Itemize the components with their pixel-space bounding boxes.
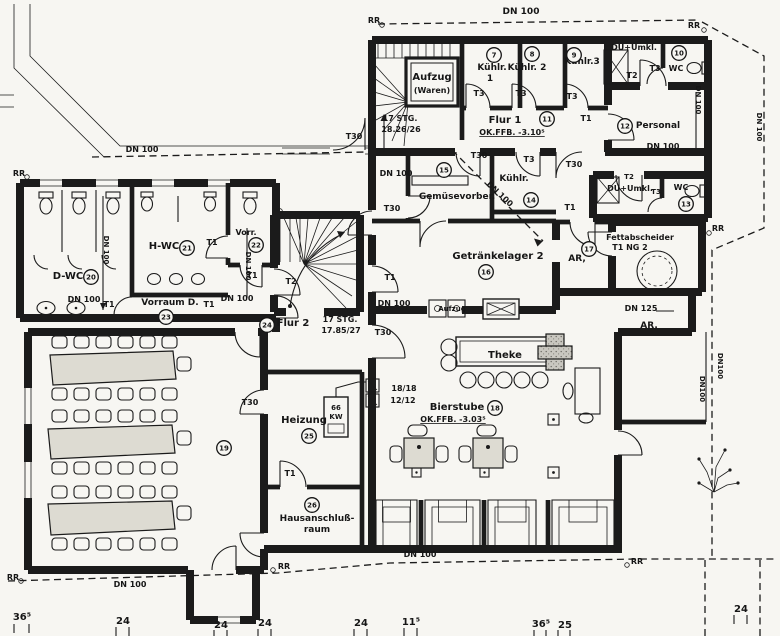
plan-label: 11⁵ bbox=[402, 617, 420, 628]
plan-label: KW bbox=[329, 413, 342, 421]
plan-label: Flur 1 bbox=[489, 115, 522, 126]
room-number: 16 bbox=[481, 269, 491, 277]
plan-label: T3 bbox=[651, 188, 661, 196]
plan-label: DU+Umkl. bbox=[607, 184, 653, 193]
plan-label: T3 bbox=[523, 155, 534, 164]
dimension-tick bbox=[354, 629, 367, 636]
desk bbox=[563, 368, 600, 423]
chair-icon bbox=[118, 486, 133, 498]
chair-icon bbox=[140, 388, 155, 400]
chair-icon bbox=[162, 388, 177, 400]
dimension-tick bbox=[258, 629, 271, 636]
plan-label: T30 bbox=[242, 398, 259, 407]
room-number-bubble: 13 bbox=[679, 197, 694, 212]
plan-label: T1 bbox=[384, 273, 395, 282]
room-number-bubble: 25 bbox=[302, 429, 317, 444]
plan-label: RR bbox=[631, 557, 643, 566]
room-number-bubble: 9 bbox=[567, 48, 582, 63]
room-number-bubble: 8 bbox=[525, 47, 540, 62]
chair-icon bbox=[52, 410, 67, 422]
dimension-tick bbox=[734, 615, 747, 624]
plan-label: 1 bbox=[487, 74, 493, 84]
urinal-icon bbox=[204, 192, 216, 211]
plan-label: T1 bbox=[564, 203, 575, 212]
room-number: 11 bbox=[542, 116, 552, 124]
chair-icon bbox=[177, 357, 191, 371]
plan-label: 36⁵ bbox=[532, 619, 550, 630]
chair-icon bbox=[140, 462, 155, 474]
room-number-bubble: 20 bbox=[84, 270, 99, 285]
plan-label: OK.FFB. -3.10⁵ bbox=[479, 128, 545, 137]
rainpipe-marker bbox=[625, 563, 630, 568]
chair-icon bbox=[118, 410, 133, 422]
room-number: 8 bbox=[530, 51, 535, 59]
room-number: 24 bbox=[262, 322, 272, 330]
room-number-bubble: 10 bbox=[672, 46, 687, 61]
room-number-bubble: 24 bbox=[260, 318, 275, 333]
room-number: 23 bbox=[161, 314, 171, 322]
chair-icon bbox=[118, 538, 133, 550]
chair-icon bbox=[140, 410, 155, 422]
plan-label: DU+Umkl. bbox=[611, 43, 657, 52]
plan-label: T1 bbox=[284, 469, 295, 478]
plan-label: DN 100 bbox=[102, 236, 110, 265]
room-number-bubble: 14 bbox=[524, 193, 539, 208]
room-number: 21 bbox=[182, 245, 192, 253]
plan-label: raum bbox=[304, 525, 330, 535]
window-bay bbox=[383, 507, 410, 547]
plan-label: RR bbox=[7, 573, 19, 582]
plan-label: 18/18 bbox=[391, 384, 417, 393]
plan-label: Fettabscheider bbox=[606, 233, 674, 242]
plan-label: Bierstube bbox=[430, 402, 485, 413]
chair-icon bbox=[74, 486, 89, 498]
room-number: 26 bbox=[307, 502, 317, 510]
window-bay bbox=[495, 507, 529, 547]
plan-label: T30 bbox=[471, 151, 488, 160]
plan-label: RR bbox=[278, 562, 290, 571]
room-number-bubble: 19 bbox=[217, 441, 232, 456]
plant-icon bbox=[697, 448, 739, 492]
plan-label: 17 STG. bbox=[323, 315, 358, 324]
plan-label: T1 NG 2 bbox=[612, 243, 647, 252]
room-number-bubble: 26 bbox=[305, 498, 320, 513]
bar-stool-icon bbox=[441, 355, 457, 371]
toilet-icon bbox=[39, 192, 53, 214]
room-number: 25 bbox=[304, 433, 314, 441]
room-number-bubble: 17 bbox=[582, 242, 597, 257]
sink-icon bbox=[148, 274, 161, 285]
plan-label: DN 100 bbox=[221, 294, 254, 303]
plan-label: T2 bbox=[285, 277, 296, 286]
chair-icon bbox=[96, 336, 111, 348]
plan-label: D-WC bbox=[53, 271, 84, 282]
plan-label: T1 bbox=[203, 300, 214, 309]
plan-label: DN100 bbox=[698, 376, 706, 402]
plan-label: DN 100 bbox=[404, 550, 437, 559]
bar-stool-icon bbox=[478, 372, 494, 388]
floor-plan-page: DN 100RRRRAufzug(Waren)Kühlr.1Kühlr. 2Kü… bbox=[0, 0, 780, 636]
plan-label: T30 bbox=[346, 132, 363, 141]
chair-icon bbox=[177, 431, 191, 445]
plan-label: OK.FFB. -3.03⁵ bbox=[420, 415, 486, 424]
plan-label: 36⁵ bbox=[13, 612, 31, 623]
chair-icon bbox=[96, 538, 111, 550]
plan-label: DN100 bbox=[716, 353, 724, 379]
room-number: 17 bbox=[584, 246, 594, 254]
chair-icon bbox=[74, 388, 89, 400]
plan-label: DN 100 bbox=[503, 7, 540, 17]
dimension-tick bbox=[116, 627, 129, 636]
plan-label: DN 100 bbox=[114, 580, 147, 589]
chair-icon bbox=[74, 336, 89, 348]
chair-icon bbox=[96, 486, 111, 498]
plan-label: RR bbox=[368, 16, 380, 25]
room-number: 15 bbox=[439, 167, 449, 175]
room-number-bubble: 12 bbox=[618, 119, 633, 134]
chair-icon bbox=[140, 336, 155, 348]
plan-label: Flur 2 bbox=[277, 318, 310, 329]
dumbwaiter-hatch bbox=[483, 299, 519, 319]
plan-label: (Waren) bbox=[414, 86, 450, 95]
room-number: 19 bbox=[219, 445, 229, 453]
plan-label: Kühlr. bbox=[499, 174, 528, 184]
plan-label: Gemüsevorber. bbox=[419, 192, 495, 202]
plan-label: Aufzug bbox=[438, 305, 466, 313]
plan-label: T3 bbox=[515, 89, 526, 98]
plan-label: T1 bbox=[103, 300, 114, 309]
bar-stool-icon bbox=[532, 372, 548, 388]
room-number: 12 bbox=[620, 123, 630, 131]
plan-label: DN 125 bbox=[625, 304, 658, 313]
plan-label: Getränkelager 2 bbox=[452, 251, 543, 262]
plan-label: Vorraum D. bbox=[141, 298, 198, 308]
prep-counter bbox=[412, 176, 468, 185]
plan-label: DN 100 bbox=[755, 113, 763, 142]
sink-icon bbox=[170, 274, 183, 285]
chair-icon bbox=[162, 486, 177, 498]
urinal-icon bbox=[141, 192, 153, 211]
plan-label: 25 bbox=[558, 620, 572, 631]
plan-label: 12/12 bbox=[390, 396, 415, 405]
room-number-bubble: 7 bbox=[487, 48, 502, 63]
plan-label: T3 bbox=[473, 89, 484, 98]
plan-label: Aufzug bbox=[412, 72, 451, 83]
sink-icon bbox=[192, 274, 205, 285]
plan-label: Hausanschluß- bbox=[280, 514, 355, 524]
plan-label: WC bbox=[669, 64, 684, 73]
floor-plan-canvas: DN 100RRRRAufzug(Waren)Kühlr.1Kühlr. 2Kü… bbox=[0, 0, 780, 636]
grease-separator bbox=[637, 251, 677, 291]
plan-label: Kühlr. bbox=[477, 63, 506, 73]
plan-label: AR. bbox=[640, 321, 657, 331]
plan-label: Kühlr. 2 bbox=[508, 63, 547, 73]
plan-label: AR, bbox=[568, 254, 585, 264]
bierstube-tables bbox=[390, 425, 517, 468]
plan-label: DN 100 bbox=[378, 299, 411, 308]
bar-stool-icon bbox=[441, 339, 457, 355]
plan-label: 24 bbox=[258, 618, 272, 629]
chair-icon bbox=[177, 506, 191, 520]
window-seat bbox=[498, 500, 526, 522]
chair-icon bbox=[96, 462, 111, 474]
chair-icon bbox=[162, 336, 177, 348]
room-number: 18 bbox=[490, 405, 500, 413]
window-seat bbox=[569, 500, 597, 522]
plan-label: Personal bbox=[636, 121, 680, 131]
plan-label: 18.26/26 bbox=[381, 125, 421, 134]
bar-stool-icon bbox=[460, 372, 476, 388]
plan-label: Vorr. bbox=[235, 228, 256, 237]
plan-label: DN 100 bbox=[126, 145, 159, 154]
rainpipe-marker bbox=[25, 175, 30, 180]
plan-label: T3 bbox=[566, 92, 577, 101]
room-number-bubble: 21 bbox=[180, 241, 195, 256]
chair-icon bbox=[74, 538, 89, 550]
plan-label: T30 bbox=[384, 204, 401, 213]
plan-label: T30 bbox=[375, 328, 392, 337]
chair-icon bbox=[74, 410, 89, 422]
chair-icon bbox=[140, 538, 155, 550]
room-number: 14 bbox=[526, 197, 536, 205]
chair-icon bbox=[162, 410, 177, 422]
chair-icon bbox=[140, 486, 155, 498]
plan-label: WC bbox=[674, 183, 689, 192]
hall-tables bbox=[48, 351, 176, 535]
plan-label: 17.85/27 bbox=[321, 326, 360, 335]
room-number: 20 bbox=[86, 274, 96, 282]
room-number-bubble: 11 bbox=[540, 112, 555, 127]
plan-label: DN 100 bbox=[694, 86, 702, 115]
plan-label: 24 bbox=[734, 604, 748, 615]
room-number-bubble: 22 bbox=[249, 238, 264, 253]
rainpipe-marker bbox=[271, 568, 276, 573]
chair-icon bbox=[52, 336, 67, 348]
plan-label: RR bbox=[688, 21, 700, 30]
chair-icon bbox=[162, 462, 177, 474]
plan-label: DN 100 bbox=[68, 295, 101, 304]
room-number-bubble: 23 bbox=[159, 310, 174, 325]
dimension-tick bbox=[534, 630, 546, 636]
room-number: 13 bbox=[681, 201, 691, 209]
plan-label: DN 100 bbox=[647, 142, 680, 151]
rainpipe-marker bbox=[702, 28, 707, 33]
toilet-icon bbox=[72, 192, 86, 214]
room-number-bubble: 15 bbox=[437, 163, 452, 178]
plan-label: Theke bbox=[488, 350, 522, 361]
plan-label: 24 bbox=[354, 618, 368, 629]
plan-label: 17 STG. bbox=[383, 114, 418, 123]
bar-stool-icon bbox=[496, 372, 512, 388]
plan-label: RR bbox=[712, 224, 724, 233]
toilet-icon bbox=[243, 192, 257, 214]
room-number-bubble: 16 bbox=[479, 265, 494, 280]
bar-stool-icon bbox=[514, 372, 530, 388]
plan-label: RR bbox=[13, 169, 25, 178]
plan-label: T2 bbox=[626, 71, 637, 80]
chair-icon bbox=[162, 538, 177, 550]
chair-icon bbox=[96, 410, 111, 422]
window-seat bbox=[383, 500, 411, 522]
dimension-tick bbox=[14, 624, 29, 633]
plan-label: T30 bbox=[566, 160, 583, 169]
site-boundary-lines bbox=[0, 4, 372, 157]
chair-icon bbox=[52, 388, 67, 400]
room-number: 9 bbox=[572, 52, 577, 60]
room-number: 7 bbox=[492, 52, 497, 60]
room-number: 22 bbox=[251, 242, 261, 250]
plan-label: DN 100 bbox=[380, 169, 413, 178]
plan-label: T1 bbox=[206, 238, 217, 247]
toilet-icon bbox=[106, 192, 120, 214]
plan-label: T1 bbox=[580, 114, 591, 123]
chair-icon bbox=[52, 462, 67, 474]
plan-label: 66 bbox=[331, 404, 341, 412]
chair-icon bbox=[74, 462, 89, 474]
chair-icon bbox=[52, 538, 67, 550]
chair-icon bbox=[118, 462, 133, 474]
rainpipe-marker bbox=[707, 231, 712, 236]
plan-label: 24 bbox=[214, 620, 228, 631]
window-bay bbox=[559, 507, 607, 547]
plan-label: T1 bbox=[246, 271, 257, 280]
dimension-tick bbox=[404, 628, 417, 636]
chair-icon bbox=[118, 336, 133, 348]
chair-icon bbox=[118, 388, 133, 400]
chair-icon bbox=[52, 486, 67, 498]
room-number-bubble: 18 bbox=[488, 401, 503, 416]
plan-label: T2 bbox=[624, 173, 634, 181]
plan-label: Heizung bbox=[281, 415, 327, 426]
chair-icon bbox=[96, 388, 111, 400]
window-seat bbox=[439, 500, 467, 522]
plan-label: 24 bbox=[116, 616, 130, 627]
room-number: 10 bbox=[674, 50, 684, 58]
plan-label: H-WC bbox=[149, 241, 179, 252]
plan-label: T3 bbox=[649, 64, 660, 73]
